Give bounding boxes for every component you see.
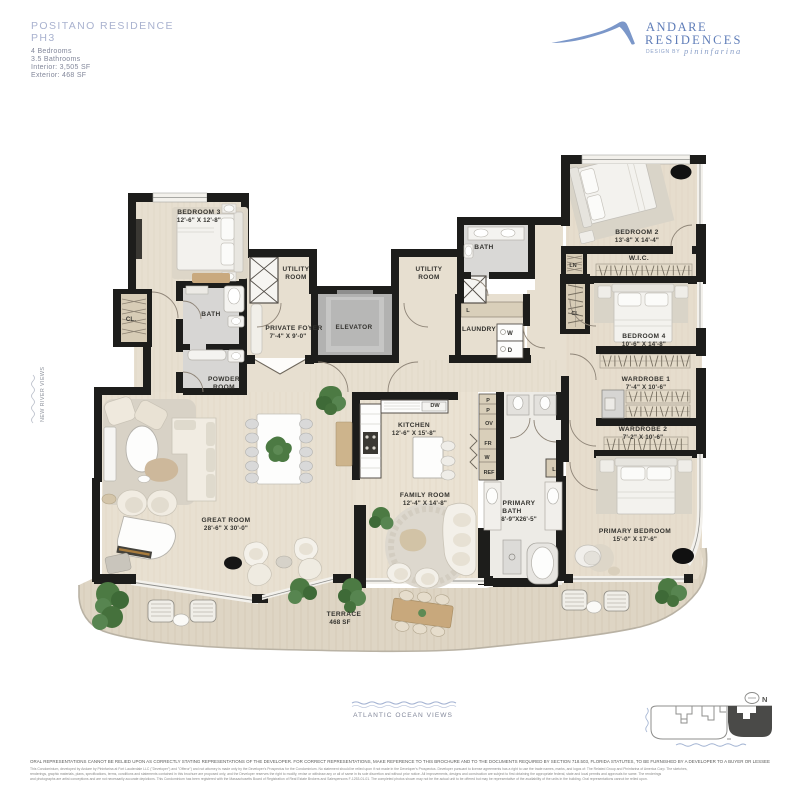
svg-text:OV: OV	[485, 421, 493, 427]
svg-text:ELEVATOR: ELEVATOR	[336, 324, 373, 331]
svg-text:P: P	[486, 398, 490, 404]
svg-text:P: P	[486, 408, 490, 414]
svg-text:POWDER: POWDER	[208, 376, 240, 383]
svg-text:12'-4" X 14'-8": 12'-4" X 14'-8"	[403, 500, 447, 507]
svg-text:FAMILY ROOM: FAMILY ROOM	[400, 492, 450, 499]
svg-text:ORAL REPRESENTATIONS CANNOT BE: ORAL REPRESENTATIONS CANNOT BE RELIED UP…	[30, 759, 770, 764]
svg-text:468 SF: 468 SF	[329, 619, 350, 626]
svg-text:POSITANO RESIDENCE: POSITANO RESIDENCE	[31, 20, 174, 32]
svg-text:RESIDENCES: RESIDENCES	[645, 33, 743, 47]
svg-text:ROOM: ROOM	[285, 274, 306, 281]
svg-text:ATLANTIC OCEAN VIEWS: ATLANTIC OCEAN VIEWS	[353, 712, 453, 719]
svg-text:BEDROOM 4: BEDROOM 4	[622, 333, 666, 340]
svg-text:W.I.C.: W.I.C.	[629, 255, 649, 262]
svg-text:15'-0" X 17'-6": 15'-0" X 17'-6"	[613, 536, 657, 543]
svg-text:TERRACE: TERRACE	[327, 611, 362, 618]
svg-text:PH3: PH3	[31, 32, 56, 44]
svg-text:UTILITY: UTILITY	[416, 266, 443, 273]
svg-text:L: L	[552, 467, 556, 473]
svg-text:12'-6" X 15'-8": 12'-6" X 15'-8"	[392, 430, 436, 437]
svg-text:L: L	[466, 308, 470, 314]
svg-text:UTILITY: UTILITY	[283, 266, 310, 273]
svg-text:BATH: BATH	[201, 311, 220, 318]
svg-text:PRIMARY: PRIMARY	[503, 500, 536, 507]
svg-text:12'-6" X 12'-8": 12'-6" X 12'-8"	[177, 217, 221, 224]
svg-text:BEDROOM 3: BEDROOM 3	[177, 209, 221, 216]
svg-text:7'-4" X 9'-0": 7'-4" X 9'-0"	[270, 333, 307, 340]
svg-text:WARDROBE 1: WARDROBE 1	[622, 376, 671, 383]
svg-text:GREAT ROOM: GREAT ROOM	[202, 517, 251, 524]
svg-text:DESIGN BY: DESIGN BY	[646, 49, 680, 55]
svg-text:pininfarina: pininfarina	[683, 46, 742, 56]
svg-text:W: W	[507, 331, 513, 337]
svg-text:REF: REF	[484, 470, 495, 476]
svg-text:ANDARE: ANDARE	[646, 20, 707, 34]
svg-text:DW: DW	[430, 403, 440, 409]
svg-text:7'-4" X 10'-6": 7'-4" X 10'-6"	[626, 384, 667, 391]
svg-text:LN: LN	[569, 263, 576, 269]
svg-text:7'-2" X 10'-6": 7'-2" X 10'-6"	[623, 434, 664, 441]
svg-text:N: N	[762, 695, 767, 704]
svg-text:FR: FR	[484, 441, 491, 447]
svg-text:CL.: CL.	[126, 317, 136, 323]
svg-text:CL: CL	[571, 311, 579, 317]
svg-text:PRIVATE FOYER: PRIVATE FOYER	[265, 325, 322, 332]
svg-text:PRIMARY BEDROOM: PRIMARY BEDROOM	[599, 528, 671, 535]
svg-text:Exterior: 468 SF: Exterior: 468 SF	[31, 72, 86, 79]
svg-text:BATH: BATH	[474, 244, 493, 251]
svg-text:D: D	[508, 348, 513, 354]
svg-text:ROOM: ROOM	[213, 384, 235, 391]
svg-text:and photographs are artist con: and photographs are artist conceptions a…	[30, 777, 648, 781]
svg-text:10'-6" X 14'-8": 10'-6" X 14'-8"	[622, 341, 666, 348]
svg-text:This Condominium, developed by: This Condominium, developed by Andare by…	[30, 767, 688, 771]
svg-text:BATH: BATH	[502, 508, 521, 515]
svg-text:ROOM: ROOM	[418, 274, 439, 281]
svg-text:WARDROBE 2: WARDROBE 2	[619, 426, 668, 433]
svg-text:BEDROOM 2: BEDROOM 2	[615, 229, 659, 236]
svg-text:3.5 Bathrooms: 3.5 Bathrooms	[31, 56, 81, 63]
svg-text:renderings, graphic materials,: renderings, graphic materials, plans, sp…	[30, 772, 661, 776]
svg-text:8'-9"X26'-5": 8'-9"X26'-5"	[501, 516, 536, 523]
svg-text:28'-6" X 30'-0": 28'-6" X 30'-0"	[204, 525, 248, 532]
svg-text:LAUNDRY: LAUNDRY	[462, 326, 496, 333]
svg-text:NEW RIVER VIEWS: NEW RIVER VIEWS	[40, 367, 46, 422]
svg-text:13'-8" X 14'-4": 13'-8" X 14'-4"	[615, 237, 659, 244]
svg-text:KITCHEN: KITCHEN	[398, 422, 430, 429]
svg-text:Interior: 3,505 SF: Interior: 3,505 SF	[31, 64, 90, 71]
svg-text:4 Bedrooms: 4 Bedrooms	[31, 48, 72, 55]
